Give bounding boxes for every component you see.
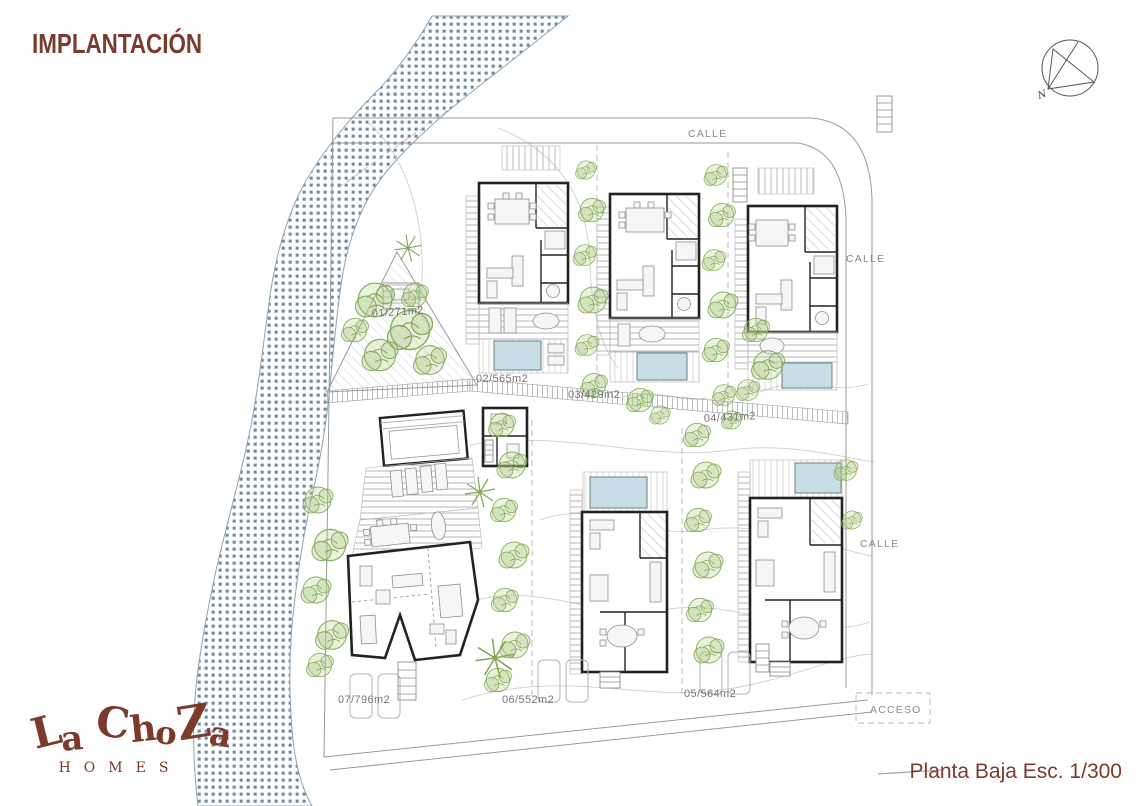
plot-label-05: 05/564m2: [684, 688, 736, 700]
side-deck: [570, 490, 582, 674]
house-plot-04: [735, 206, 837, 390]
entry-stairs: [600, 672, 620, 688]
bottom-boundary-line: [324, 700, 868, 757]
brand-name: La ChoZa: [30, 700, 200, 746]
house-plot-06: [570, 472, 667, 688]
pool: [782, 363, 832, 388]
pool: [494, 341, 541, 370]
pool: [590, 477, 647, 508]
brand-logo: La ChoZa HOMES: [30, 700, 200, 776]
street-label-acceso: ACCESO: [870, 704, 922, 716]
plot-label-06: 06/552m2: [502, 694, 554, 706]
bottom-outer-line: [330, 712, 872, 770]
side-deck: [597, 207, 610, 355]
side-deck: [738, 472, 750, 662]
street-label-calle-right-upper: CALLE: [846, 253, 885, 265]
house-plot-02: [466, 183, 568, 373]
page-title: IMPLANTACIÓN: [32, 28, 202, 60]
house-plot-03: [597, 194, 699, 382]
brand-subtitle: HOMES: [40, 760, 200, 776]
site-plan-drawing: CALLE CALLE CALLE ACCESO 01/271m2 02/565…: [0, 0, 1140, 806]
street-label-calle-top: CALLE: [688, 128, 727, 140]
house-plot-07: [348, 411, 482, 700]
plot-label-07: 07/796m2: [338, 694, 390, 706]
parking-strip-top-2: [758, 168, 814, 194]
side-deck: [735, 219, 748, 369]
scale-label: Planta Baja Esc. 1/300: [910, 760, 1122, 784]
pool: [637, 353, 687, 380]
compass-north-label: N: [1035, 88, 1049, 102]
sheet: CALLE CALLE CALLE ACCESO 01/271m2 02/565…: [0, 0, 1140, 806]
plot-label-04: 04/431m2: [704, 410, 757, 425]
north-compass: N: [1035, 40, 1098, 102]
house-plot-05: [738, 460, 842, 676]
pool: [795, 463, 841, 493]
plot-label-02: 02/565m2: [476, 373, 528, 385]
entry-stairs: [770, 662, 790, 676]
compass-needle: [1048, 42, 1094, 89]
side-deck: [466, 196, 479, 344]
parking-strip-top-1: [502, 146, 560, 170]
street-label-calle-right-lower: CALLE: [860, 538, 899, 550]
plot-label-03: 03/429m2: [568, 389, 620, 401]
